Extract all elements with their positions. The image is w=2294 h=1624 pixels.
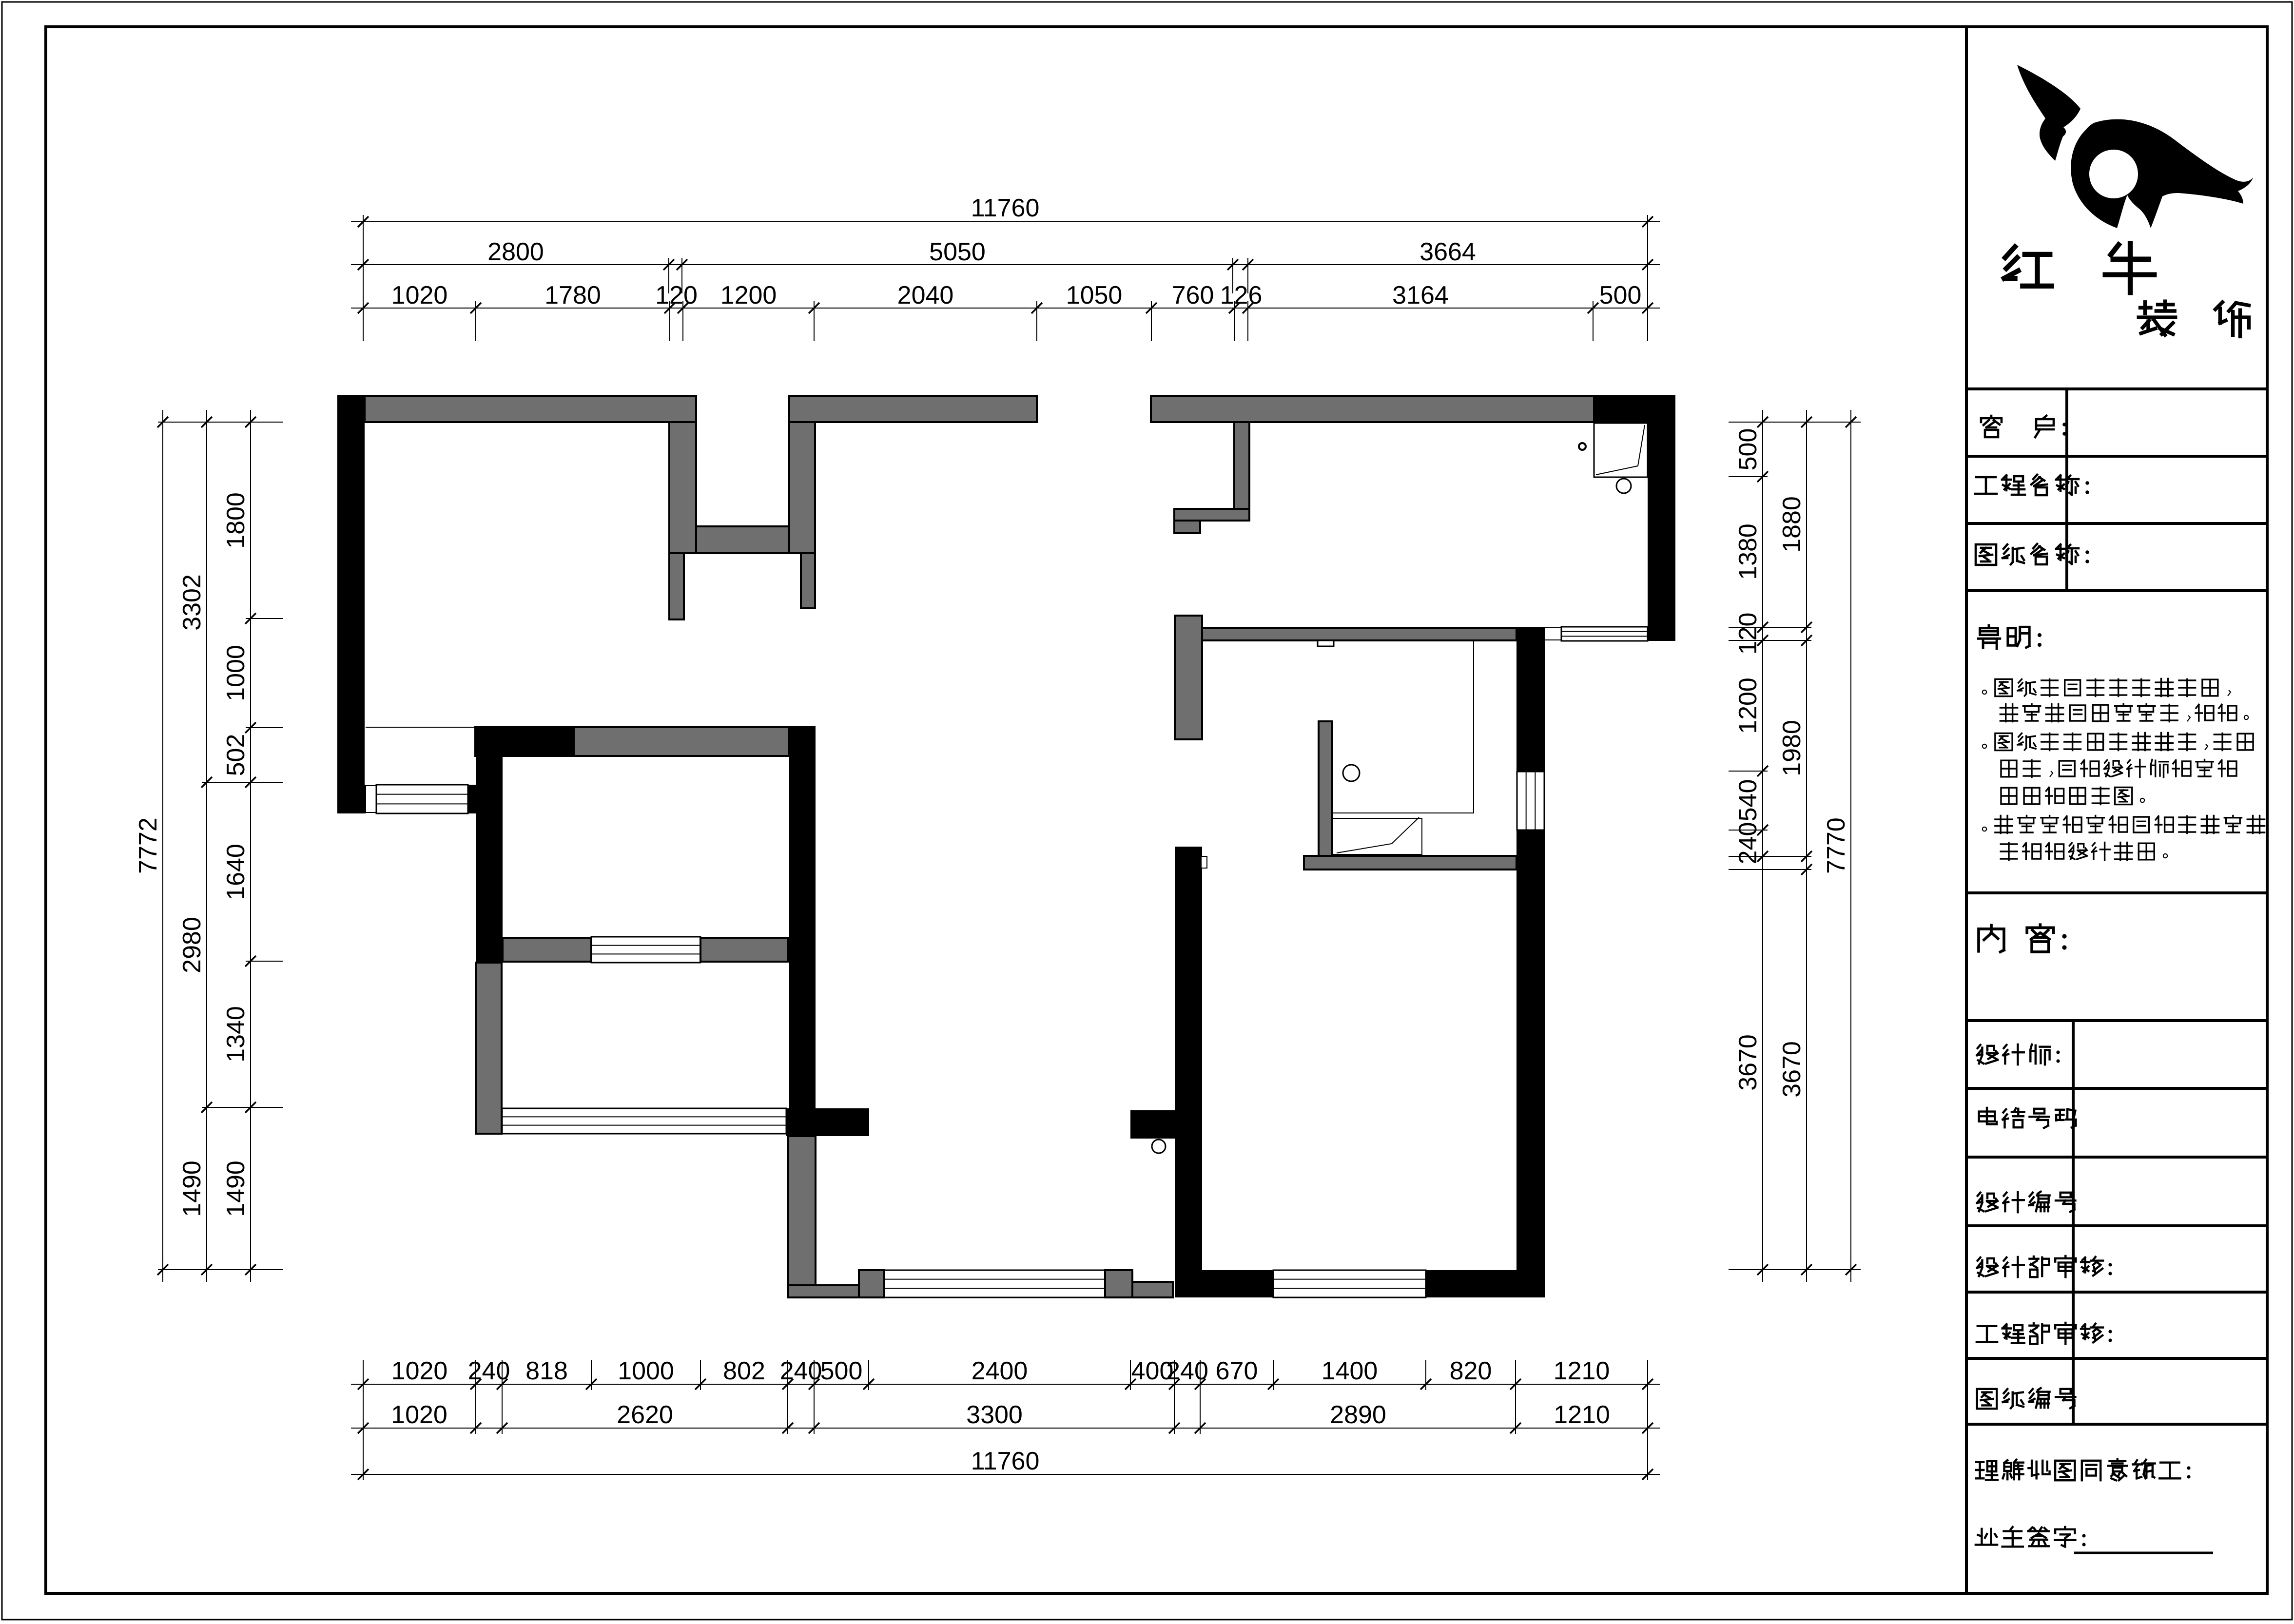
svg-text:240: 240 (780, 1357, 822, 1385)
svg-text:11760: 11760 (971, 1447, 1040, 1475)
svg-text:820: 820 (1450, 1357, 1492, 1385)
svg-text:500: 500 (1599, 281, 1642, 309)
svg-text:1020: 1020 (391, 281, 448, 309)
svg-text:240: 240 (1734, 822, 1762, 865)
svg-text:7772: 7772 (134, 817, 162, 874)
svg-text:1210: 1210 (1554, 1401, 1610, 1429)
svg-text:3670: 3670 (1778, 1041, 1806, 1098)
svg-text:1880: 1880 (1778, 496, 1806, 553)
svg-text:500: 500 (1734, 428, 1762, 471)
svg-text:5050: 5050 (929, 238, 986, 266)
svg-text:1400: 1400 (1322, 1357, 1378, 1385)
svg-text:802: 802 (723, 1357, 765, 1385)
svg-text:120: 120 (1734, 613, 1762, 655)
svg-text:2040: 2040 (897, 281, 954, 309)
svg-text:3664: 3664 (1419, 238, 1476, 266)
svg-text:3300: 3300 (966, 1401, 1023, 1429)
svg-text:2890: 2890 (1330, 1401, 1386, 1429)
svg-text:1490: 1490 (178, 1160, 206, 1217)
svg-text:1340: 1340 (222, 1006, 250, 1063)
svg-text:670: 670 (1216, 1357, 1258, 1385)
svg-text:1200: 1200 (720, 281, 777, 309)
svg-text:1980: 1980 (1778, 720, 1806, 776)
svg-text:120: 120 (655, 281, 698, 309)
svg-text:2800: 2800 (487, 238, 544, 266)
svg-text:7770: 7770 (1822, 817, 1850, 874)
svg-text:240: 240 (468, 1357, 510, 1385)
svg-text:1640: 1640 (222, 844, 250, 900)
svg-text:818: 818 (525, 1357, 568, 1385)
svg-text:240: 240 (1166, 1357, 1208, 1385)
svg-text:1000: 1000 (618, 1357, 674, 1385)
svg-text:1020: 1020 (391, 1401, 447, 1429)
svg-text:126: 126 (1220, 281, 1263, 309)
svg-text:3302: 3302 (178, 574, 206, 631)
svg-text:2400: 2400 (972, 1357, 1028, 1385)
svg-text:760: 760 (1172, 281, 1214, 309)
svg-text:3670: 3670 (1734, 1034, 1762, 1091)
svg-text:1210: 1210 (1554, 1357, 1610, 1385)
svg-text:1800: 1800 (222, 492, 250, 549)
svg-text:1200: 1200 (1734, 677, 1762, 734)
svg-text:1380: 1380 (1734, 523, 1762, 580)
svg-text:1780: 1780 (544, 281, 601, 309)
svg-text:1050: 1050 (1066, 281, 1123, 309)
svg-text:502: 502 (222, 734, 250, 776)
svg-text:11760: 11760 (971, 194, 1040, 222)
svg-text:1000: 1000 (222, 645, 250, 701)
svg-text:2980: 2980 (178, 917, 206, 973)
svg-text:540: 540 (1734, 779, 1762, 822)
svg-text:1490: 1490 (222, 1160, 250, 1217)
svg-text:500: 500 (820, 1357, 863, 1385)
svg-text:3164: 3164 (1392, 281, 1449, 309)
svg-text:2620: 2620 (617, 1401, 673, 1429)
svg-text:1020: 1020 (391, 1357, 448, 1385)
